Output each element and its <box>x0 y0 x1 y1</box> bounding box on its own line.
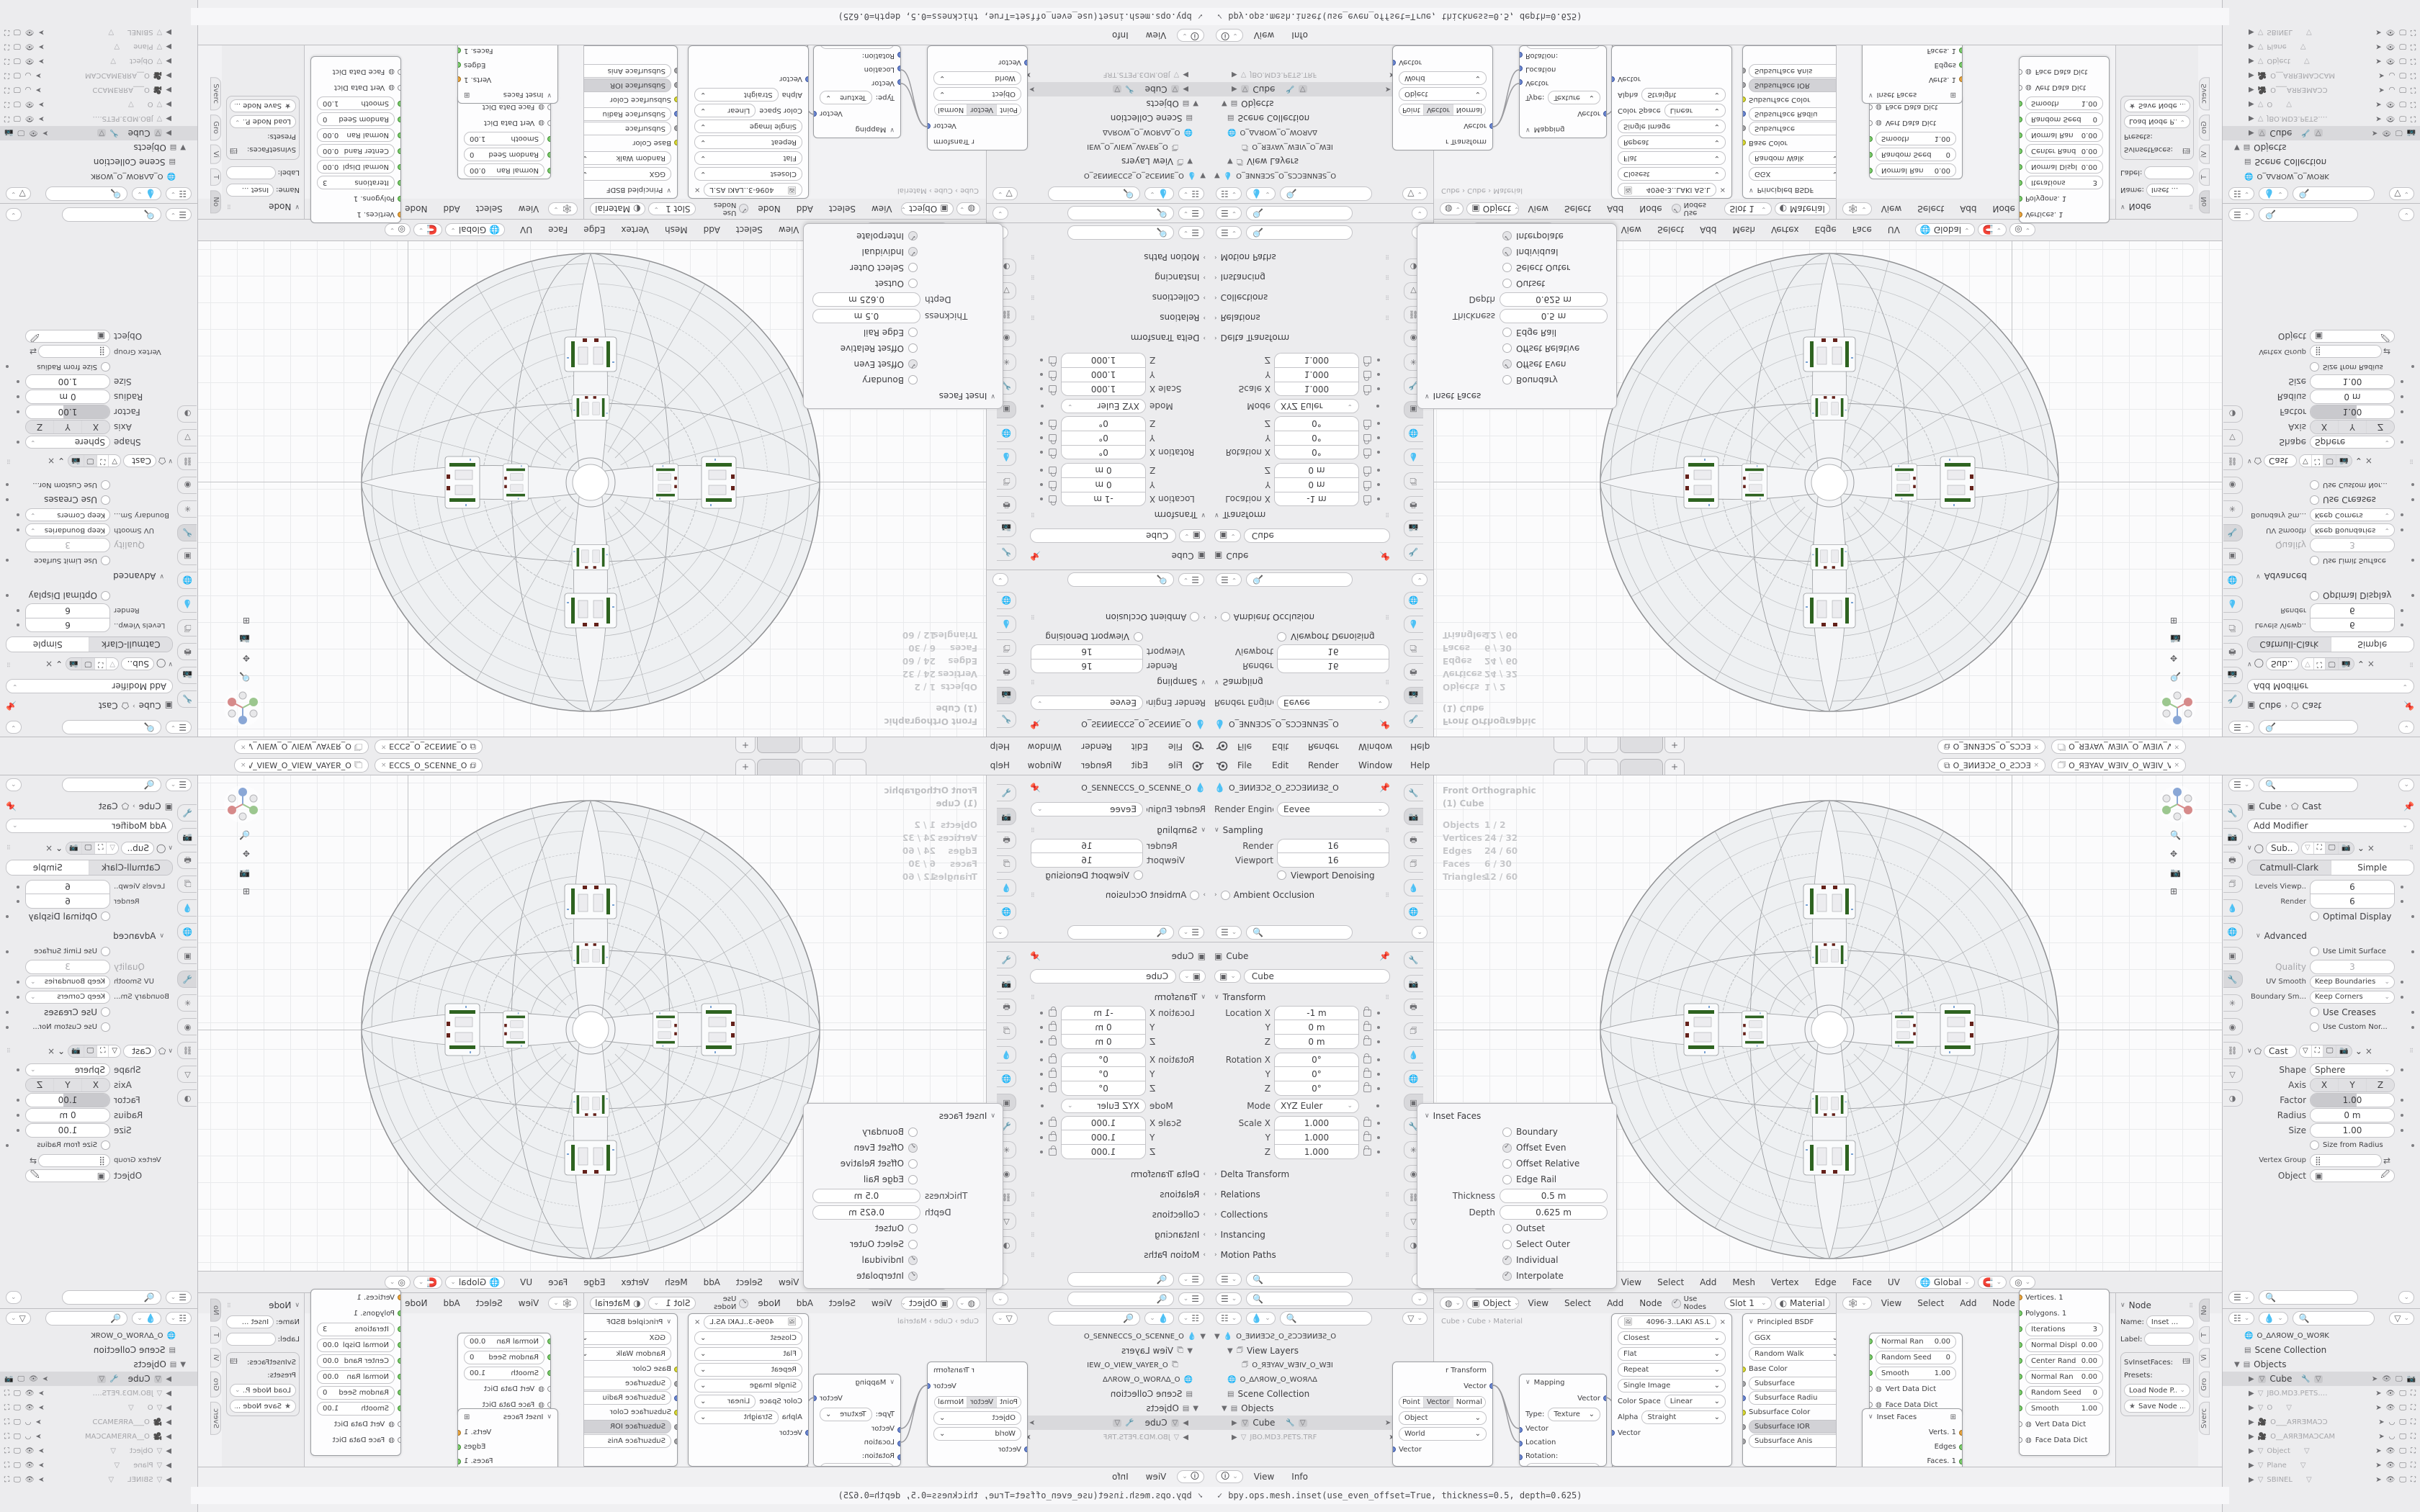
vector-socket[interactable] <box>927 123 931 129</box>
outliner-row-scene-collection[interactable]: ▤Scene Collection <box>2223 155 2420 169</box>
camera-view-icon[interactable]: 📷 <box>239 868 250 878</box>
outliner-row-camera[interactable]: ▶🎥O___AЯRƎMAƆƆ➤◡🖵⛶ <box>2223 83 2420 97</box>
animate-dot[interactable] <box>1040 1136 1043 1139</box>
view-menu[interactable]: View <box>1615 1274 1648 1291</box>
editor-type-button[interactable]: ☰⌄ <box>1178 207 1204 220</box>
outliner-row-cube[interactable]: ▶▽Cube🔧▽➤👁🖵📷 <box>2223 1372 2420 1386</box>
select-menu[interactable]: Select <box>1911 200 1950 217</box>
alpha-select[interactable]: Straight⌄ <box>1641 89 1726 102</box>
disable-render-icon[interactable]: ⛶ <box>2411 86 2416 94</box>
mapping-type-select[interactable]: Texture⌄ <box>1548 91 1600 105</box>
uv-smooth-select[interactable]: Keep Boundaries⌄ <box>25 524 110 537</box>
disable-viewport-icon[interactable]: 🖵 <box>2399 29 2406 37</box>
load-preset-button[interactable]: Load Node P...⌄ <box>2124 115 2190 128</box>
viewlayer-tab-icon[interactable]: 🗇 <box>998 472 1017 490</box>
output-tab-icon[interactable]: 🖶 <box>998 496 1017 513</box>
disable-render-icon[interactable]: ⛶ <box>2411 1390 2416 1398</box>
props-search-input[interactable]: 🔍 <box>1067 572 1174 587</box>
sampling-panel-header[interactable]: ∨Sampling⠿ <box>1214 674 1390 690</box>
modifier-tab-icon[interactable]: 🔧 <box>2223 524 2243 541</box>
outliner-row-viewlayers[interactable]: ▼🗇View Layers <box>1210 1344 1433 1358</box>
image-datablock[interactable]: 🖼4096-3..LAKI AS.L <box>1618 184 1716 197</box>
select-icon[interactable]: ➤ <box>38 58 44 66</box>
show-viewport-icon[interactable]: 🖵 <box>84 456 97 467</box>
disable-render-icon[interactable]: ⛶ <box>4 29 9 37</box>
cast-name-field[interactable]: Cast <box>2264 1045 2297 1058</box>
show-render-icon[interactable]: 📷 <box>66 842 81 854</box>
show-render-icon[interactable]: 📷 <box>2339 659 2353 670</box>
select-icon[interactable]: ➤ <box>2375 1462 2381 1470</box>
pan-tool-icon[interactable]: ✥ <box>243 849 250 859</box>
advanced-panel-header[interactable]: ∨Advanced <box>6 928 173 944</box>
select-icon[interactable]: ➤ <box>35 72 41 80</box>
axis-x-button[interactable]: X <box>81 421 109 434</box>
hide-icon[interactable]: 👁 <box>2386 1476 2396 1484</box>
vector-socket[interactable] <box>1489 123 1493 129</box>
outliner-search-input[interactable]: 🔍 <box>2293 1311 2375 1326</box>
select-icon[interactable]: ➤ <box>2378 86 2384 94</box>
radius-field[interactable]: 0 m <box>25 390 110 405</box>
world-tab-icon[interactable]: 🌐 <box>998 903 1017 920</box>
outliner-scene-select[interactable]: 💧⌄ <box>132 1312 161 1325</box>
load-preset-button[interactable]: Load Node P...⌄ <box>2124 1384 2190 1397</box>
tab-group[interactable]: Gro <box>210 114 221 140</box>
disable-render-icon[interactable]: 📷 <box>2407 130 2416 138</box>
load-preset-button[interactable]: Load Node P...⌄ <box>230 1384 296 1397</box>
pin-icon[interactable]: 📌 <box>1030 719 1041 729</box>
loc-x-field[interactable]: -1 m <box>1274 1006 1359 1020</box>
scene-tab-icon[interactable]: 💧 <box>998 1046 1017 1063</box>
eyedropper-icon[interactable]: 🖉 <box>2380 1169 2390 1182</box>
outliner-row-scene-collection[interactable]: ▤Scene Collection <box>0 1343 197 1357</box>
object-id-icon-button[interactable]: ▣⌄ <box>1214 970 1241 983</box>
vertex-group-field[interactable]: ⣿ <box>2310 346 2382 359</box>
scale-x-field[interactable]: 1.000 <box>1061 382 1146 397</box>
point-option[interactable]: Point <box>1399 105 1424 116</box>
output-tab-icon[interactable]: 🖶 <box>1404 832 1423 849</box>
vector-in-socket[interactable] <box>1392 1446 1396 1452</box>
uv-menu[interactable]: UV <box>1881 222 1906 239</box>
select-menu[interactable]: Select <box>1651 222 1690 239</box>
principled-bsdf-node[interactable]: ∨Principled BSDF GGX⌄ Random Walk⌄ Base … <box>570 1313 678 1467</box>
rotation-socket[interactable] <box>897 1454 901 1460</box>
viewlayer-tab-icon[interactable]: 🗇 <box>2223 876 2243 893</box>
world-tab-icon[interactable]: 🌐 <box>1404 425 1423 442</box>
rotation-mode-select[interactable]: XYZ Euler⌄ <box>1061 400 1146 414</box>
vector-in-socket[interactable] <box>1519 79 1523 85</box>
props-search-input[interactable]: 🔍 <box>1246 925 1353 940</box>
object-tab-icon[interactable]: ▣ <box>2223 947 2243 964</box>
close-icon[interactable]: × <box>48 1046 55 1056</box>
orientation-select[interactable]: 🌐Global⌄ <box>445 224 505 237</box>
axis-y-button[interactable]: Y <box>2339 1079 2367 1092</box>
animate-dot[interactable] <box>1377 1040 1380 1043</box>
inset-panel-header[interactable]: ∨Inset Faces <box>1425 388 1609 404</box>
animate-dot[interactable] <box>1377 498 1380 501</box>
show-viewport-icon[interactable]: 🖵 <box>2326 659 2339 670</box>
disable-viewport-icon[interactable]: 🖵 <box>14 1433 21 1441</box>
invert-icon[interactable]: ⇄ <box>30 1156 37 1166</box>
outliner-scene-select[interactable]: 💧⌄ <box>1246 187 1276 200</box>
relations-panel[interactable]: ›Relations⠿ <box>1214 1187 1390 1202</box>
modifier-extras-button[interactable]: ⌄ <box>2355 1046 2362 1056</box>
world-tab-icon[interactable]: 🌐 <box>998 425 1017 442</box>
instancing-panel[interactable]: ›Instancing⠿ <box>1030 1227 1206 1243</box>
ambient-occlusion-panel[interactable]: › Ambient Occlusion⠿ <box>1214 887 1390 903</box>
disable-render-icon[interactable]: ⛶ <box>4 1390 9 1398</box>
tab-sverchok[interactable]: Sverc <box>210 1402 221 1435</box>
render-tab-icon[interactable]: 📷 <box>1404 975 1423 992</box>
scene-selector[interactable]: ⧉O_ƎИИƎƆƧ_O_ƧƆƆƎИИƎƧ_O× <box>375 758 483 773</box>
outliner-row[interactable]: ▶▽Object▽➤👁🖵⛶ <box>2223 1444 2420 1458</box>
menu-edit[interactable]: Edit <box>1124 756 1155 775</box>
cast-object-field[interactable]: ▣🖉 <box>2310 330 2395 343</box>
sv-inset-faces-big-node[interactable]: Vertices. 1 Polygons. 1 Iterations3 Norm… <box>2019 1289 2110 1456</box>
view-menu[interactable]: View <box>1247 1468 1281 1485</box>
workspace-tab-1[interactable] <box>1554 759 1585 775</box>
workspace-tab-2[interactable] <box>802 759 833 775</box>
inset-panel-header[interactable]: ∨Inset Faces <box>811 388 995 404</box>
use-limit-surface-checkbox[interactable] <box>101 947 110 956</box>
tab-sverchok[interactable]: Sverc <box>2199 77 2210 110</box>
outliner-row-camera[interactable]: ▶🎥O___AЯRƎMAƆƆ➤◡🖵⛶ <box>0 1415 197 1429</box>
animate-dot[interactable] <box>1040 1040 1043 1043</box>
unlink-icon[interactable]: × <box>694 1318 700 1326</box>
vector-transform-node[interactable]: r Transform Vector PointVectorNormal Obj… <box>927 45 1028 150</box>
subsurface-radius-socket[interactable] <box>674 1395 678 1401</box>
animate-dot[interactable] <box>1377 359 1380 361</box>
disable-render-icon[interactable]: ⛶ <box>4 1418 9 1426</box>
workspace-tab-add[interactable]: + <box>1664 737 1685 753</box>
hide-icon[interactable]: 👁 <box>25 43 35 51</box>
animate-dot[interactable] <box>1040 1151 1043 1153</box>
animate-dot[interactable] <box>1376 405 1379 408</box>
vector-socket[interactable] <box>1489 1383 1493 1389</box>
use-limit-surface-checkbox[interactable] <box>101 556 110 565</box>
lock-icon[interactable] <box>1363 1148 1371 1156</box>
outliner-row[interactable]: ▶▽JBO.MD3.PETS.TRF➤👁🖵⛶ <box>2223 1386 2420 1400</box>
lock-icon[interactable] <box>1363 1085 1371 1092</box>
hide-icon[interactable]: 👁 <box>2386 1404 2396 1412</box>
projection-select[interactable]: Flat⌄ <box>1618 1347 1726 1361</box>
animate-dot[interactable] <box>1377 436 1380 439</box>
vertex-menu[interactable]: Vertex <box>1765 222 1806 239</box>
node-menu[interactable]: Node <box>398 1295 434 1312</box>
disable-viewport-icon[interactable]: 🖵 <box>14 29 21 37</box>
viewport-denoising-checkbox[interactable] <box>1277 870 1286 880</box>
outliner-row-scene[interactable]: ▼💧O_ƎИИƎƆƧ_O_ƧƆƆƎИИƎƧ_O <box>1210 1329 1433 1344</box>
face-menu[interactable]: Face <box>542 1274 574 1291</box>
lock-icon[interactable] <box>1049 1038 1057 1045</box>
pin-icon[interactable]: 📌 <box>1379 551 1390 561</box>
uv-menu[interactable]: UV <box>514 222 539 239</box>
node-label-field[interactable] <box>2144 166 2194 179</box>
axis-x-button[interactable]: X <box>2311 1079 2339 1092</box>
hide-icon[interactable]: 👁 <box>25 1447 35 1455</box>
sss-method-select[interactable]: Random Walk⌄ <box>576 152 671 166</box>
show-cage-icon[interactable]: ▽ <box>106 659 118 670</box>
disable-render-icon[interactable]: ⛶ <box>2411 43 2416 51</box>
render-tab-icon[interactable]: 📷 <box>998 687 1017 704</box>
mapping-type-select[interactable]: Texture⌄ <box>820 91 872 105</box>
navigation-gizmo[interactable] <box>2159 689 2196 726</box>
boundary-checkbox[interactable] <box>908 1128 918 1137</box>
render-tab-icon[interactable]: 📷 <box>2223 828 2243 845</box>
snap-toggle[interactable]: 🧲⌄ <box>413 1276 443 1289</box>
outset-checkbox[interactable] <box>1502 279 1512 289</box>
select-icon[interactable]: ➤ <box>2375 1390 2381 1398</box>
depth-field[interactable]: 0.625 m <box>812 1205 920 1220</box>
outliner-row-objects[interactable]: ▼▤Objects <box>0 1357 197 1372</box>
subsurface-socket[interactable] <box>674 1381 678 1387</box>
lock-icon[interactable] <box>1363 496 1371 503</box>
add-menu[interactable]: Add <box>1953 1295 1983 1312</box>
modifier-extras-button[interactable]: ⌄ <box>58 456 65 467</box>
navigation-gizmo[interactable] <box>224 786 261 823</box>
uv-smooth-select[interactable]: Keep Boundaries⌄ <box>25 976 110 989</box>
outset-checkbox[interactable] <box>908 279 918 289</box>
output-tab-icon[interactable]: 🖶 <box>1404 496 1423 513</box>
editor-type-button[interactable]: 🕸⌄ <box>548 1297 578 1310</box>
advanced-panel-header[interactable]: ∨Advanced <box>6 568 173 584</box>
boundary-checkbox[interactable] <box>1502 1128 1512 1137</box>
base-color-socket[interactable] <box>1742 1367 1746 1372</box>
viewlayer-tab-icon[interactable]: 🗇 <box>178 619 197 636</box>
show-render-icon[interactable]: 📷 <box>68 456 83 467</box>
vector-in-socket[interactable] <box>1611 1430 1615 1436</box>
animate-dot[interactable] <box>1377 1058 1380 1061</box>
cast-collapse[interactable]: ∨ <box>2247 1048 2252 1055</box>
outliner-row-world[interactable]: 🌐O_ΔΛЯOW_O_WOЯK <box>2223 1328 2420 1343</box>
individual-checkbox[interactable] <box>908 1256 918 1265</box>
pin-icon[interactable]: 📌 <box>1379 783 1390 793</box>
outset-checkbox[interactable] <box>1502 1224 1512 1233</box>
sv-inset-faces-big-node[interactable]: Vertices. 1 Polygons. 1 Iterations3 Norm… <box>310 56 401 223</box>
subsurface-aniso-socket[interactable] <box>1742 1439 1746 1444</box>
loc-x-field[interactable]: -1 m <box>1274 492 1359 507</box>
props-filter-button[interactable]: ⌄ <box>992 1292 1008 1305</box>
editor-type-button[interactable]: ☰⌄ <box>1178 573 1204 586</box>
thickness-field[interactable]: 0.5 m <box>812 310 920 324</box>
subsurface-radius-socket[interactable] <box>1742 1395 1746 1401</box>
outliner-row-scene[interactable]: ▼💧O_ƎИИƎƆƧ_O_ƧƆƆƎИИƎƧ_O <box>1210 168 1433 183</box>
subsurface-aniso-socket[interactable] <box>674 68 678 73</box>
lock-icon[interactable] <box>1049 496 1057 503</box>
particles-tab-icon[interactable]: ✳ <box>2223 994 2243 1012</box>
scene-selector[interactable]: ⧉O_ƎИИƎƆƧ_O_ƧƆƆƎИИƎƧ_O× <box>1937 758 2045 773</box>
disable-render-icon[interactable]: ⛶ <box>2411 115 2416 123</box>
hide-icon[interactable]: ◡ <box>25 86 32 94</box>
axis-z-button[interactable]: Z <box>26 421 53 434</box>
node-name-field[interactable]: Inset ... <box>2146 184 2194 197</box>
menu-file[interactable]: File <box>1161 756 1190 775</box>
ortho-toggle-icon[interactable]: ⊞ <box>2170 616 2177 626</box>
pin-icon[interactable]: 📌 <box>6 701 17 711</box>
editor-type-button[interactable]: ☰⌄ <box>1178 1292 1204 1305</box>
render-tab-icon[interactable]: 📷 <box>998 520 1017 537</box>
scene-tab-icon[interactable]: 💧 <box>998 879 1017 896</box>
particles-tab-icon[interactable]: ✳ <box>178 994 197 1012</box>
object-id-icon-button[interactable]: ▣⌄ <box>1179 970 1206 983</box>
select-icon[interactable]: ➤ <box>2375 1404 2381 1412</box>
vertex-group-field[interactable]: ⣿ <box>38 1154 110 1167</box>
disable-viewport-icon[interactable]: 🖵 <box>2399 1447 2406 1455</box>
motion-paths-panel[interactable]: ›Motion Paths⠿ <box>1214 1247 1390 1263</box>
source-select[interactable]: Single Image⌄ <box>1618 120 1726 134</box>
material-tab-icon[interactable]: ◑ <box>178 1089 197 1107</box>
editor-type-button[interactable]: ☰⌄ <box>2228 208 2254 221</box>
add-modifier-button[interactable]: Add Modifier⌄ <box>2247 819 2414 833</box>
cast-collapse[interactable]: ∨ <box>168 1048 173 1055</box>
disable-render-icon[interactable]: ⛶ <box>4 1433 9 1441</box>
physics-tab-icon[interactable]: ◉ <box>178 477 197 494</box>
loc-x-field[interactable]: -1 m <box>1061 492 1146 507</box>
node-name-field[interactable]: Inset ... <box>2146 1315 2194 1328</box>
scale-x-field[interactable]: 1.000 <box>1274 1116 1359 1130</box>
rot-y-field[interactable]: 0° <box>1061 1067 1146 1081</box>
lock-icon[interactable] <box>1049 1148 1057 1156</box>
hide-icon[interactable]: 👁 <box>2386 115 2396 123</box>
depth-field[interactable]: 0.625 m <box>812 293 920 307</box>
disable-render-icon[interactable]: 📷 <box>4 1375 13 1383</box>
camera-view-icon[interactable]: 📷 <box>2170 868 2181 878</box>
select-icon[interactable]: ➤ <box>2378 72 2384 80</box>
interpolation-select[interactable]: Closest⌄ <box>694 1331 802 1345</box>
eyedropper-icon[interactable]: 🖉 <box>30 1169 40 1182</box>
proportional-edit-toggle[interactable]: ◎⌄ <box>385 1276 411 1289</box>
sampling-render-field[interactable]: 16 <box>1277 839 1389 853</box>
axis-x-button[interactable]: X <box>81 1079 109 1092</box>
tab-tool[interactable]: T <box>210 1326 221 1344</box>
menu-window[interactable]: Window <box>1351 756 1399 775</box>
constraint-tab-icon[interactable]: ⛓ <box>2223 453 2243 470</box>
render-tab-icon[interactable]: 📷 <box>2223 667 2243 684</box>
alpha-select[interactable]: Straight⌄ <box>694 1410 779 1424</box>
principled-bsdf-node[interactable]: ∨Principled BSDF GGX⌄ Random Walk⌄ Base … <box>1742 45 1850 199</box>
interpolate-checkbox[interactable] <box>908 1272 918 1281</box>
image-texture-node[interactable]: 🖼4096-3..LAKI AS.L× Closest⌄ Flat⌄ Repea… <box>688 45 809 199</box>
outliner-row[interactable]: ▶▽O▽➤👁🖵⛶ <box>0 1400 197 1415</box>
delta-transform-panel[interactable]: ›Delta Transform <box>1214 330 1390 346</box>
sss-method-select[interactable]: Random Walk⌄ <box>576 1347 671 1361</box>
normal-option[interactable]: Normal <box>935 1397 967 1408</box>
convert-from-select[interactable]: Object⌄ <box>1399 88 1487 102</box>
rot-x-field[interactable]: 0° <box>1274 1053 1359 1067</box>
relations-panel[interactable]: ›Relations⠿ <box>1030 310 1206 325</box>
loc-y-field[interactable]: 0 m <box>1061 477 1146 492</box>
eyedropper-icon[interactable]: 🖉 <box>30 330 40 343</box>
proportional-edit-toggle[interactable]: ◎⌄ <box>2009 1276 2035 1289</box>
disable-render-icon[interactable]: ⛶ <box>2411 1476 2416 1484</box>
disable-viewport-icon[interactable]: 🖵 <box>14 1418 21 1426</box>
outliner-row-world[interactable]: 🌐O_ΔΛЯOW_O_WOЯK <box>0 169 197 184</box>
props-filter-button[interactable]: ⌄ <box>1412 926 1428 939</box>
output-tab-icon[interactable]: 🖶 <box>998 832 1017 849</box>
mesh-data-tab-icon[interactable]: ▽ <box>2223 1066 2243 1083</box>
select-menu[interactable]: Select <box>1651 1274 1690 1291</box>
scene-tab-icon[interactable]: 💧 <box>998 616 1017 633</box>
vector-option[interactable]: Vector <box>1424 1397 1453 1408</box>
select-icon[interactable]: ➤ <box>38 1476 44 1484</box>
modifier-tab-icon[interactable]: 🔧 <box>2223 971 2243 988</box>
menu-help[interactable]: Help <box>1403 737 1437 756</box>
animate-dot[interactable] <box>1040 469 1043 472</box>
select-icon[interactable]: ➤ <box>2375 101 2381 109</box>
outliner-row-camera[interactable]: ▶🎥O__AЯRƎMAƆCAM➤◡🖵⛶ <box>0 1429 197 1444</box>
optimal-display-checkbox[interactable] <box>2310 912 2319 921</box>
lock-icon[interactable] <box>1363 1009 1371 1017</box>
menu-file[interactable]: File <box>1230 756 1259 775</box>
instancing-panel[interactable]: ›Instancing⠿ <box>1214 269 1390 285</box>
mapping-node[interactable]: ∨Mapping Vector Type:Texture⌄ Vector Loc… <box>813 45 901 138</box>
simple-option[interactable]: Simple <box>6 637 89 652</box>
lock-icon[interactable] <box>1363 1056 1371 1063</box>
viewlayer-tab-icon[interactable]: 🗇 <box>2223 619 2243 636</box>
outliner-row-scene[interactable]: ▼💧O_ƎИИƎƆƧ_O_ƧƆƆƎИИƎƧ_O <box>987 1329 1210 1344</box>
hide-icon[interactable]: 👁 <box>2386 1462 2396 1470</box>
vector-in-socket[interactable] <box>1519 1427 1523 1433</box>
select-menu[interactable]: Select <box>470 200 509 217</box>
disable-viewport-icon[interactable]: 🖵 <box>2396 1375 2403 1383</box>
show-cage-icon[interactable]: ▽ <box>108 456 120 467</box>
select-icon[interactable]: ➤ <box>35 1433 41 1441</box>
inset-panel-header[interactable]: ∨Inset Faces <box>1425 1108 1609 1124</box>
output-tab-icon[interactable]: 🖶 <box>178 852 197 869</box>
pin-icon[interactable]: 📌 <box>2403 701 2414 711</box>
lock-icon[interactable] <box>1363 449 1371 456</box>
tool-tab-icon[interactable]: 🔧 <box>1404 544 1423 561</box>
outliner-search-input[interactable]: 🔍 <box>45 1311 127 1326</box>
show-edit-icon[interactable]: ⛶ <box>2314 659 2326 670</box>
select-icon[interactable]: ➤ <box>38 115 44 123</box>
animate-dot[interactable] <box>1377 422 1380 425</box>
disable-viewport-icon[interactable]: 🖵 <box>2399 86 2406 94</box>
outliner-row[interactable]: ▶▽Object▽➤👁🖵⛶ <box>0 54 197 68</box>
location-socket[interactable] <box>1519 66 1523 71</box>
hide-icon[interactable]: ◡ <box>2389 1433 2396 1441</box>
delta-transform-panel[interactable]: ›Delta Transform <box>1214 1166 1390 1182</box>
pin-icon[interactable]: 📌 <box>6 801 17 811</box>
view-menu[interactable]: View <box>772 1274 805 1291</box>
outliner-scene-select[interactable]: 💧⌄ <box>1246 1312 1276 1325</box>
props-search-input[interactable]: 🔍 <box>1067 1292 1174 1306</box>
render-engine-select[interactable]: Eevee⌄ <box>1277 802 1389 816</box>
sampling-viewport-field[interactable]: 16 <box>1031 853 1143 868</box>
lock-icon[interactable] <box>1049 1009 1057 1017</box>
hide-icon[interactable]: 👁 <box>25 1476 35 1484</box>
scene-selector[interactable]: ⧉O_ƎИИƎƆƧ_O_ƧƆƆƎИИƎƧ_O× <box>1937 739 2045 754</box>
loc-z-field[interactable]: 0 m <box>1061 1035 1146 1049</box>
mesh-menu[interactable]: Mesh <box>658 1274 694 1291</box>
disable-render-icon[interactable]: ⛶ <box>4 115 9 123</box>
projection-select[interactable]: Flat⌄ <box>1618 152 1726 166</box>
lock-icon[interactable] <box>1049 371 1057 378</box>
node-label-field[interactable] <box>2144 1333 2194 1346</box>
hide-icon[interactable]: 👁 <box>25 29 35 37</box>
viewlayer-tab-icon[interactable]: 🗇 <box>1404 639 1423 657</box>
navigation-gizmo[interactable] <box>2159 786 2196 823</box>
vector-transform-node[interactable]: r Transform Vector PointVectorNormal Obj… <box>927 1362 1028 1467</box>
world-tab-icon[interactable]: 🌐 <box>998 1070 1017 1087</box>
convert-to-select[interactable]: World⌄ <box>933 1427 1021 1441</box>
pin-icon[interactable]: 📌 <box>1379 951 1390 961</box>
disable-render-icon[interactable]: ⛶ <box>4 72 9 80</box>
material-tab-icon[interactable]: ◑ <box>2223 405 2243 423</box>
disable-render-icon[interactable]: ⛶ <box>2411 1404 2416 1412</box>
offset-relative-checkbox[interactable] <box>1502 1159 1512 1169</box>
invert-icon[interactable]: ⇄ <box>2383 347 2390 357</box>
colorspace-select[interactable]: Linear⌄ <box>694 1395 756 1408</box>
